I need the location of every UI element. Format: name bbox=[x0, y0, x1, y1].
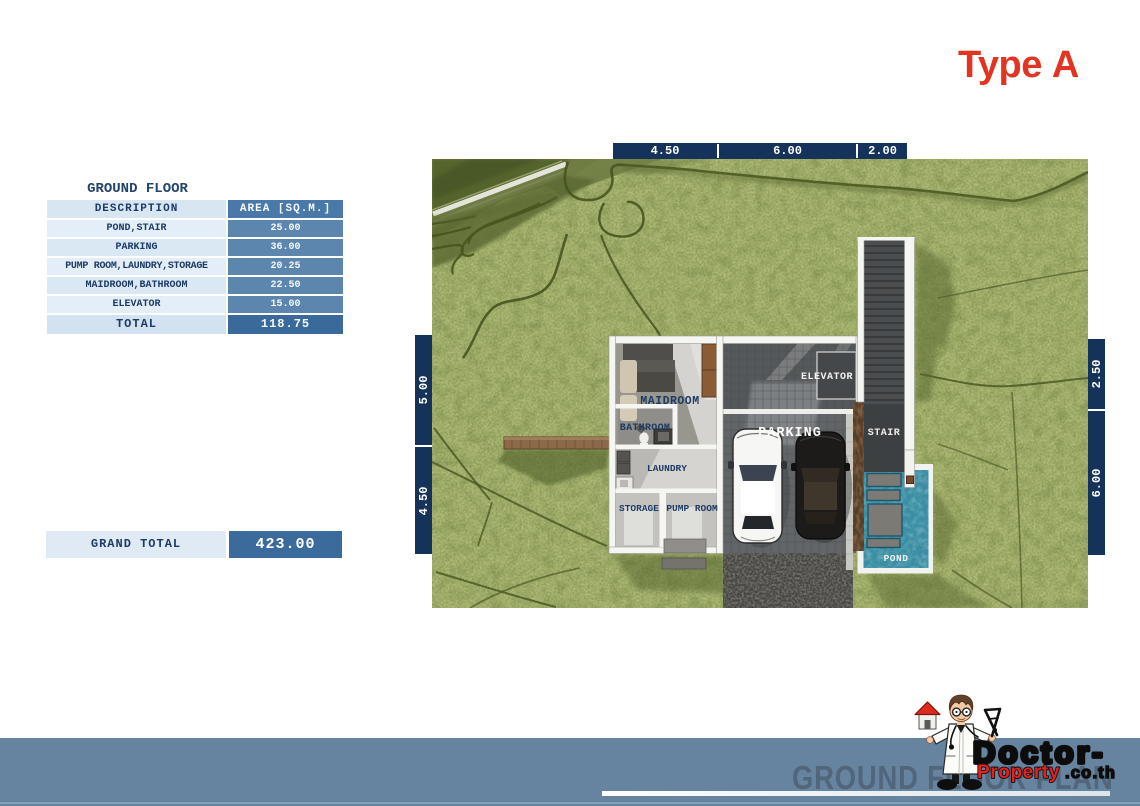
svg-text:PARKING: PARKING bbox=[758, 426, 822, 441]
svg-text:STORAGE: STORAGE bbox=[619, 503, 659, 514]
svg-text:ELEVATOR: ELEVATOR bbox=[801, 372, 853, 383]
svg-text:LAUNDRY: LAUNDRY bbox=[647, 463, 687, 474]
svg-text:MAIDROOM: MAIDROOM bbox=[640, 395, 699, 408]
svg-text:Property: Property bbox=[977, 762, 1060, 783]
svg-text:.co.th: .co.th bbox=[1065, 764, 1116, 782]
svg-text:POND: POND bbox=[884, 553, 909, 564]
svg-text:STAIR: STAIR bbox=[868, 428, 901, 439]
svg-text:PUMP ROOM: PUMP ROOM bbox=[666, 503, 718, 514]
svg-text:BATHROOM: BATHROOM bbox=[620, 423, 670, 434]
